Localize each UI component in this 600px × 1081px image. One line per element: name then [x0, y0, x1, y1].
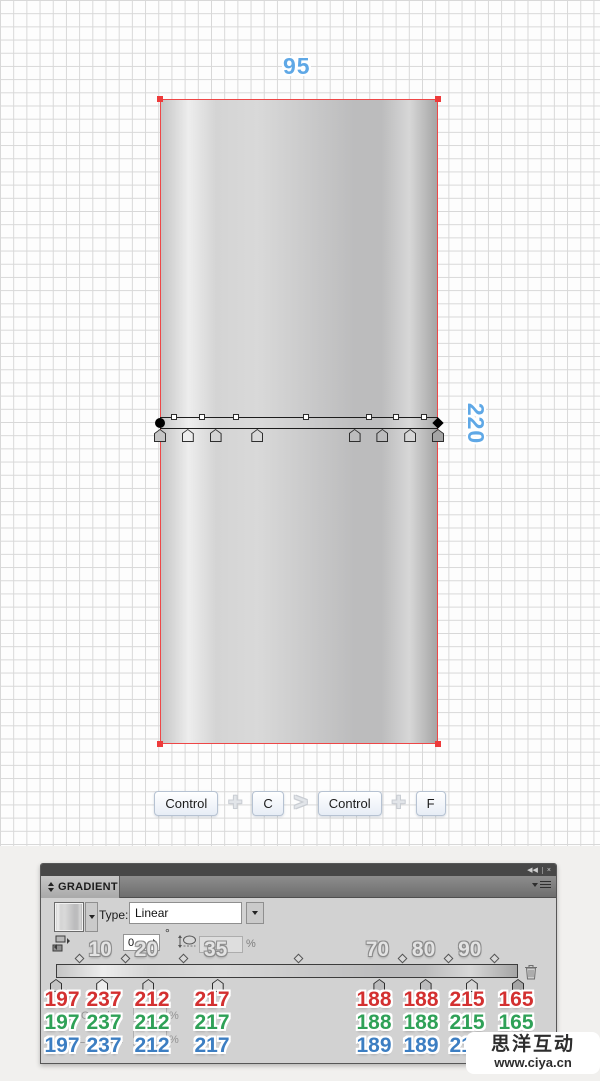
gradient-midpoint-handle[interactable] [171, 414, 177, 420]
blue-value-annotation: 189 [356, 1034, 391, 1058]
panel-menu-icon[interactable] [532, 881, 551, 888]
chevron-down-icon [252, 911, 258, 915]
gradient-swatch[interactable] [54, 902, 84, 932]
panel-title: GRADIENT [58, 881, 118, 893]
tab-gradient[interactable]: GRADIENT [41, 876, 120, 898]
height-dimension-label: 220 [462, 403, 489, 444]
stop-location-annotation: 70 [366, 938, 389, 962]
width-dimension-label: 95 [283, 53, 311, 80]
anchor-point-top-left[interactable] [157, 96, 163, 102]
trash-icon [524, 964, 538, 980]
opacity-row-percent: % [169, 1010, 179, 1022]
anchor-point-bottom-left[interactable] [157, 741, 163, 747]
slider-midpoint-handle[interactable] [294, 954, 304, 964]
gradient-midpoint-handle[interactable] [233, 414, 239, 420]
type-select[interactable]: Linear [129, 902, 242, 924]
keycap-control: Control [154, 791, 218, 816]
watermark-url: www.ciya.cn [494, 1056, 572, 1070]
panel-tab-bar: GRADIENT [41, 876, 556, 898]
chevron-down-icon [89, 915, 95, 919]
red-value-annotation: 217 [194, 988, 229, 1012]
collapse-panel-icon[interactable]: ◀◀ [527, 867, 538, 874]
degree-symbol: ° [165, 926, 170, 940]
gradient-slider-bar[interactable] [56, 964, 518, 978]
anchor-point-top-right[interactable] [435, 96, 441, 102]
slider-midpoint-handle[interactable] [178, 954, 188, 964]
type-select-arrow[interactable] [246, 902, 264, 924]
stop-location-annotation: 20 [135, 938, 158, 962]
red-value-annotation: 188 [356, 988, 391, 1012]
artboard-canvas[interactable]: 95 220 Control+C>Control+F [0, 0, 600, 846]
gradient-midpoint-handle[interactable] [366, 414, 372, 420]
red-value-annotation: 165 [498, 988, 533, 1012]
green-value-annotation: 188 [403, 1011, 438, 1035]
stop-location-annotation: 80 [412, 938, 435, 962]
green-value-annotation: 188 [356, 1011, 391, 1035]
delete-stop-button[interactable] [524, 964, 538, 980]
green-value-annotation: 217 [194, 1011, 229, 1035]
title-bar-divider [542, 867, 543, 874]
slider-midpoint-handle[interactable] [74, 954, 84, 964]
plus-separator-icon: + [392, 793, 406, 813]
collapse-tab-icon [48, 882, 54, 892]
keycap-control: Control [318, 791, 382, 816]
shortcut-row: Control+C>Control+F [0, 790, 600, 816]
reverse-gradient-icon [52, 935, 72, 953]
stop-location-annotation: 10 [89, 938, 112, 962]
page: 95 220 Control+C>Control+F ◀◀ × GRADIENT [0, 0, 600, 1081]
reverse-gradient-button[interactable] [52, 935, 72, 953]
green-value-annotation: 237 [86, 1011, 121, 1035]
percent-symbol: % [246, 938, 256, 950]
slider-midpoint-handle[interactable] [490, 954, 500, 964]
watermark-text-cn: 思洋互动 [491, 1035, 575, 1056]
red-value-annotation: 197 [44, 988, 79, 1012]
arrow-separator-icon: > [294, 793, 308, 813]
gradient-swatch-dropdown[interactable] [85, 902, 98, 932]
type-label: Type: [99, 908, 128, 922]
blue-value-annotation: 217 [194, 1034, 229, 1058]
gradient-annotator-origin-handle[interactable] [155, 418, 165, 428]
green-value-annotation: 197 [44, 1011, 79, 1035]
gradient-midpoint-handle[interactable] [393, 414, 399, 420]
keycap-c: C [252, 791, 283, 816]
green-value-annotation: 212 [134, 1011, 169, 1035]
red-value-annotation: 188 [403, 988, 438, 1012]
panel-title-bar: ◀◀ × [41, 864, 556, 876]
opacity-icon [177, 935, 197, 955]
gradient-midpoint-handle[interactable] [303, 414, 309, 420]
blue-value-annotation: 189 [403, 1034, 438, 1058]
red-value-annotation: 212 [134, 988, 169, 1012]
gradient-midpoint-handle[interactable] [199, 414, 205, 420]
stop-location-annotation: 35 [204, 938, 227, 962]
red-value-annotation: 237 [86, 988, 121, 1012]
slider-midpoint-handle[interactable] [120, 954, 130, 964]
anchor-point-bottom-right[interactable] [435, 741, 441, 747]
stop-location-annotation: 90 [458, 938, 481, 962]
gradient-midpoint-handle[interactable] [421, 414, 427, 420]
location-row-percent: % [169, 1034, 179, 1046]
slider-midpoint-handle[interactable] [444, 954, 454, 964]
plus-separator-icon: + [228, 793, 242, 813]
keycap-f: F [416, 791, 446, 816]
blue-value-annotation: 237 [86, 1034, 121, 1058]
blue-value-annotation: 212 [134, 1034, 169, 1058]
red-value-annotation: 215 [449, 988, 484, 1012]
blue-value-annotation: 197 [44, 1034, 79, 1058]
slider-midpoint-handle[interactable] [398, 954, 408, 964]
close-panel-icon[interactable]: × [547, 867, 551, 874]
watermark: 思洋互动 www.ciya.cn [466, 1032, 600, 1074]
